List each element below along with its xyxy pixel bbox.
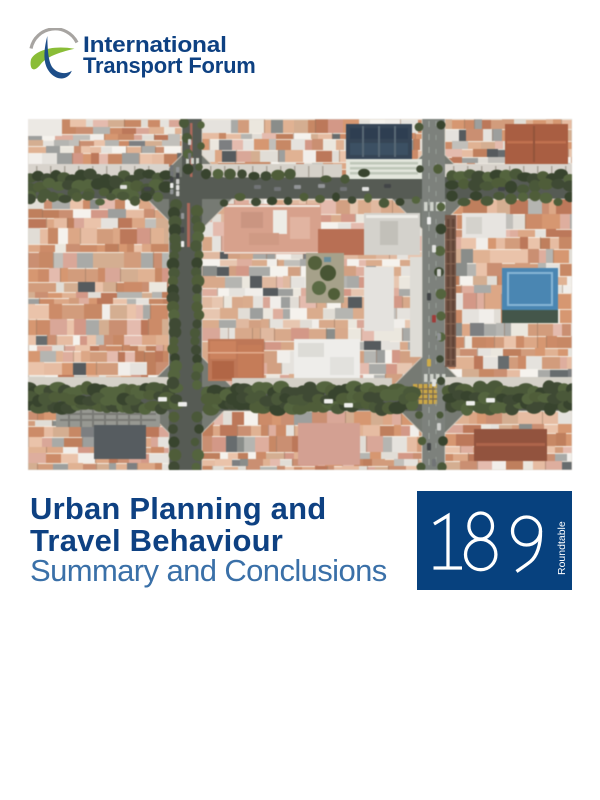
svg-text:Roundtable: Roundtable — [556, 521, 568, 575]
